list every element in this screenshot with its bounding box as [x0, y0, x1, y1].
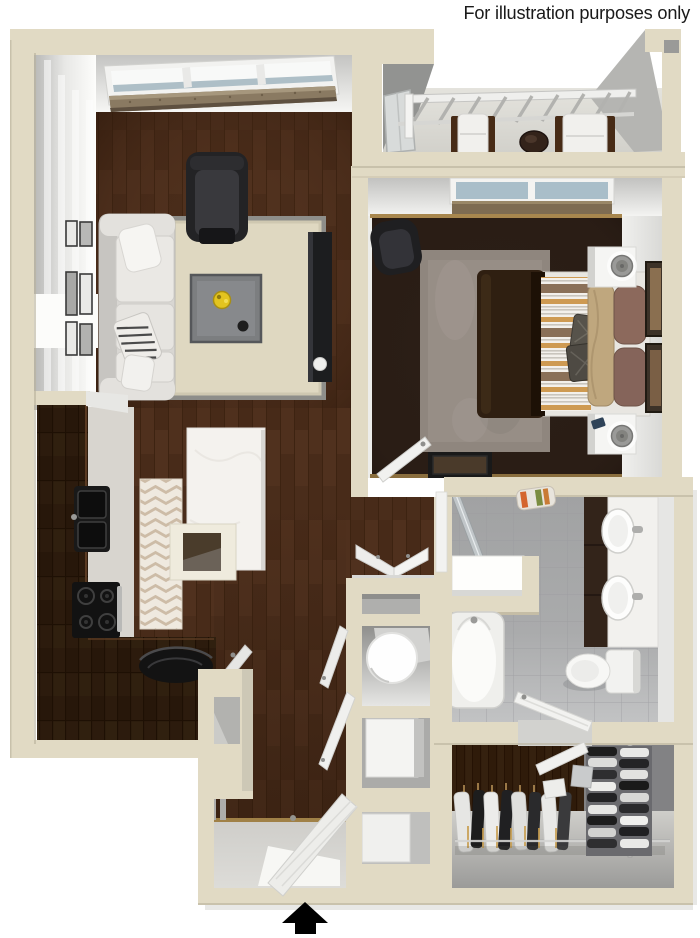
svg-text:For illustration purposes only: For illustration purposes only	[463, 3, 691, 23]
